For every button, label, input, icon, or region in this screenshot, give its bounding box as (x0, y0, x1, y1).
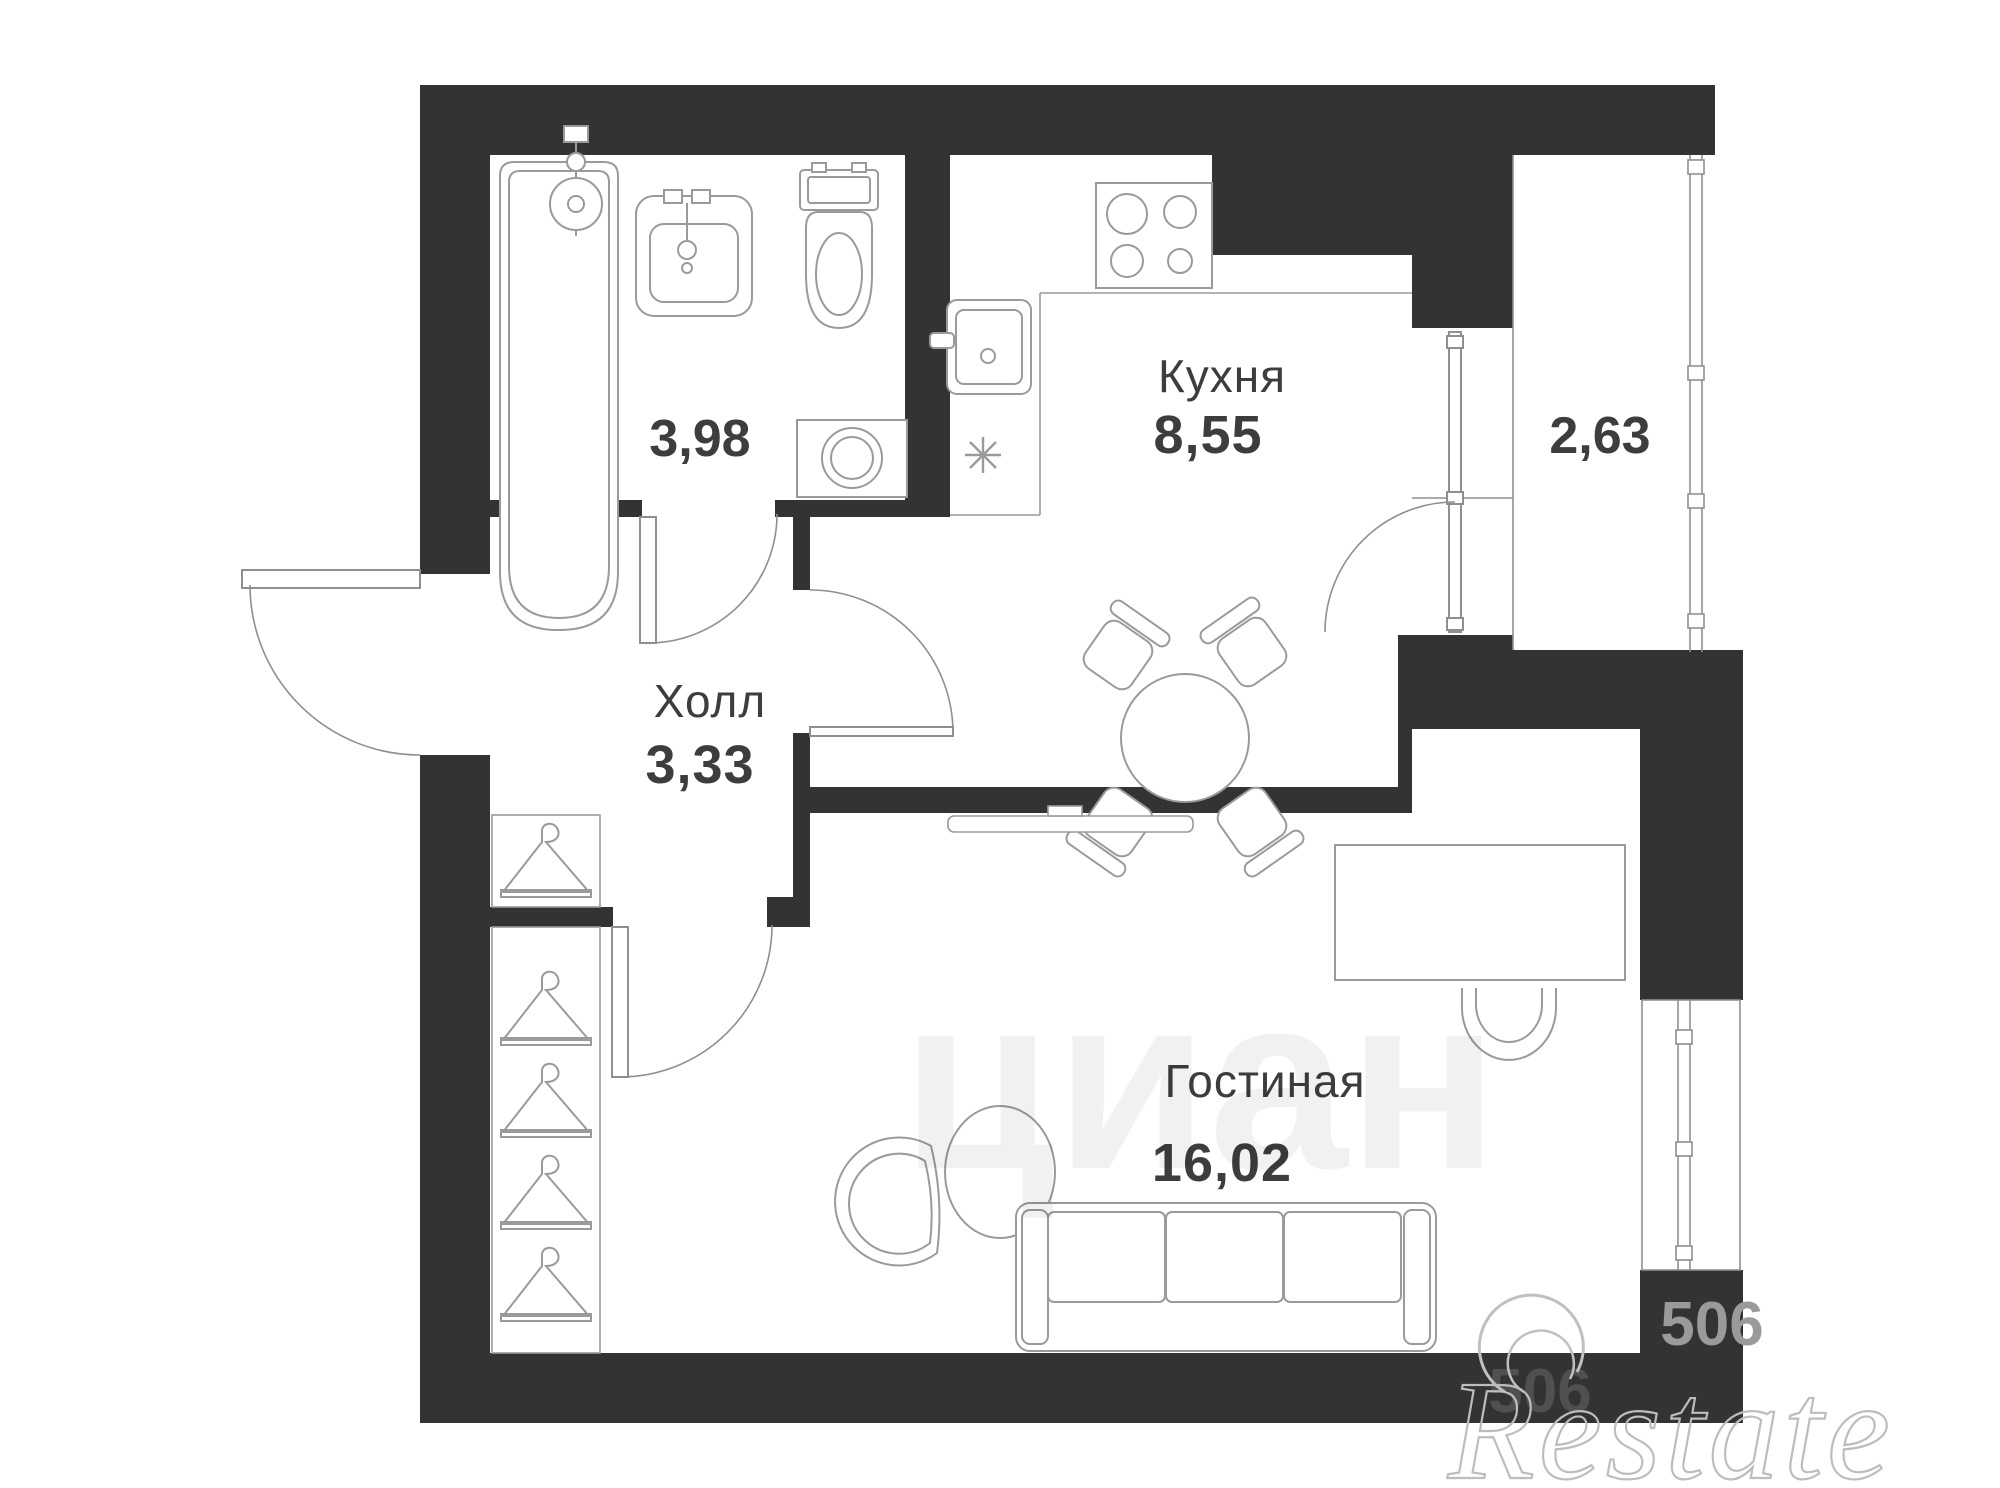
wall-segment (1412, 155, 1513, 328)
entrance-door-icon (242, 570, 420, 755)
living-room-door-icon (612, 925, 772, 1077)
wall-segment (1398, 635, 1412, 813)
hall-name-label: Холл (654, 675, 766, 727)
wall-segment (420, 85, 490, 574)
sofa-icon (1016, 1203, 1436, 1351)
balcony-window-icon (1513, 155, 1704, 652)
brand-watermark-text: Restate (1447, 1351, 1894, 1488)
kitchen-area-label: 8,55 (1153, 405, 1262, 465)
bath-sink-icon (636, 190, 752, 316)
wall-segment (1412, 635, 1513, 729)
floor-plan-page: 3,98 Кухня 8,55 2,63 Холл 3,33 Гостиная … (0, 0, 2000, 1488)
hall-area-label: 3,33 (645, 735, 754, 795)
balcony-door-icon (1325, 332, 1513, 632)
dining-table-icon (1121, 674, 1249, 802)
digits-watermark: 506 (1660, 1290, 1763, 1359)
bathroom-area-label: 3,98 (649, 410, 750, 468)
bathtub-icon (500, 126, 618, 630)
floor-plan: 3,98 Кухня 8,55 2,63 Холл 3,33 Гостиная … (0, 0, 2000, 1488)
toilet-icon (800, 163, 878, 328)
wall-segment (420, 755, 490, 1423)
asterisk-symbol (965, 437, 1001, 473)
kitchen-name-label: Кухня (1158, 350, 1286, 402)
bathroom-door-icon (640, 514, 777, 643)
wall-segment (767, 897, 810, 927)
wall-segment (420, 85, 1715, 155)
stove-icon (1096, 183, 1212, 288)
kitchen-door-icon (810, 590, 953, 736)
wall-segment (1212, 155, 1412, 255)
wall-segment (1513, 650, 1743, 729)
living-window-icon (1642, 1000, 1740, 1270)
hall-wardrobe (492, 815, 600, 907)
wall-segment (793, 500, 810, 590)
wall-segment (490, 907, 613, 927)
portal-watermark: циан (901, 942, 1498, 1221)
wall-segment (1640, 729, 1743, 1000)
washing-machine-icon (797, 420, 907, 497)
balcony-area-label: 2,63 (1549, 407, 1650, 465)
